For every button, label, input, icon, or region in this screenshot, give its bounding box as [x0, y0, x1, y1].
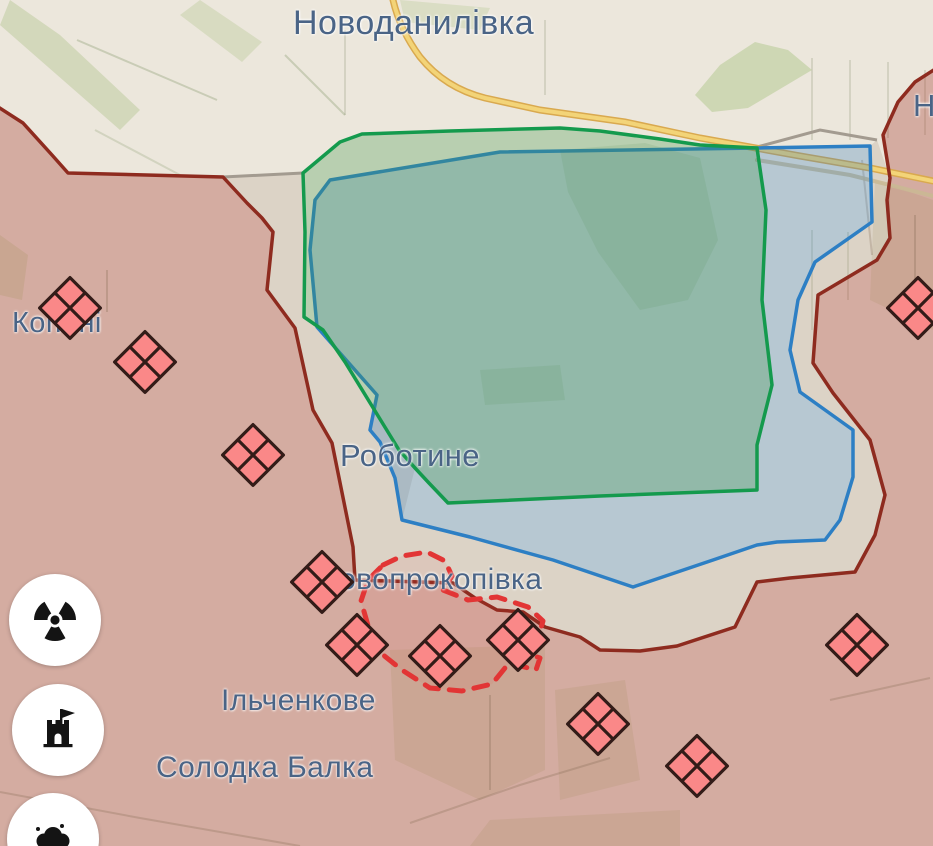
map-canvas[interactable]: Новоданилівка Н Копані Роботине Новопрок… [0, 0, 933, 846]
radiation-icon [29, 594, 81, 646]
fortification-button[interactable] [12, 684, 104, 776]
label-city-partial: Н [913, 88, 933, 124]
label-robotyne: Роботине [340, 438, 480, 474]
map-terrain-layer [0, 0, 933, 846]
label-novodanylivka: Новоданилівка [293, 4, 534, 43]
radiation-button[interactable] [9, 574, 101, 666]
castle-icon [32, 704, 84, 756]
label-solodka-balka: Солодка Балка [156, 751, 373, 785]
label-novoprokopivka: Новопрокопівка [317, 563, 542, 597]
label-kopani: Копані [12, 307, 102, 340]
explosion-cloud-icon [27, 813, 79, 846]
label-ilchenkove: Ільченкове [221, 684, 376, 718]
